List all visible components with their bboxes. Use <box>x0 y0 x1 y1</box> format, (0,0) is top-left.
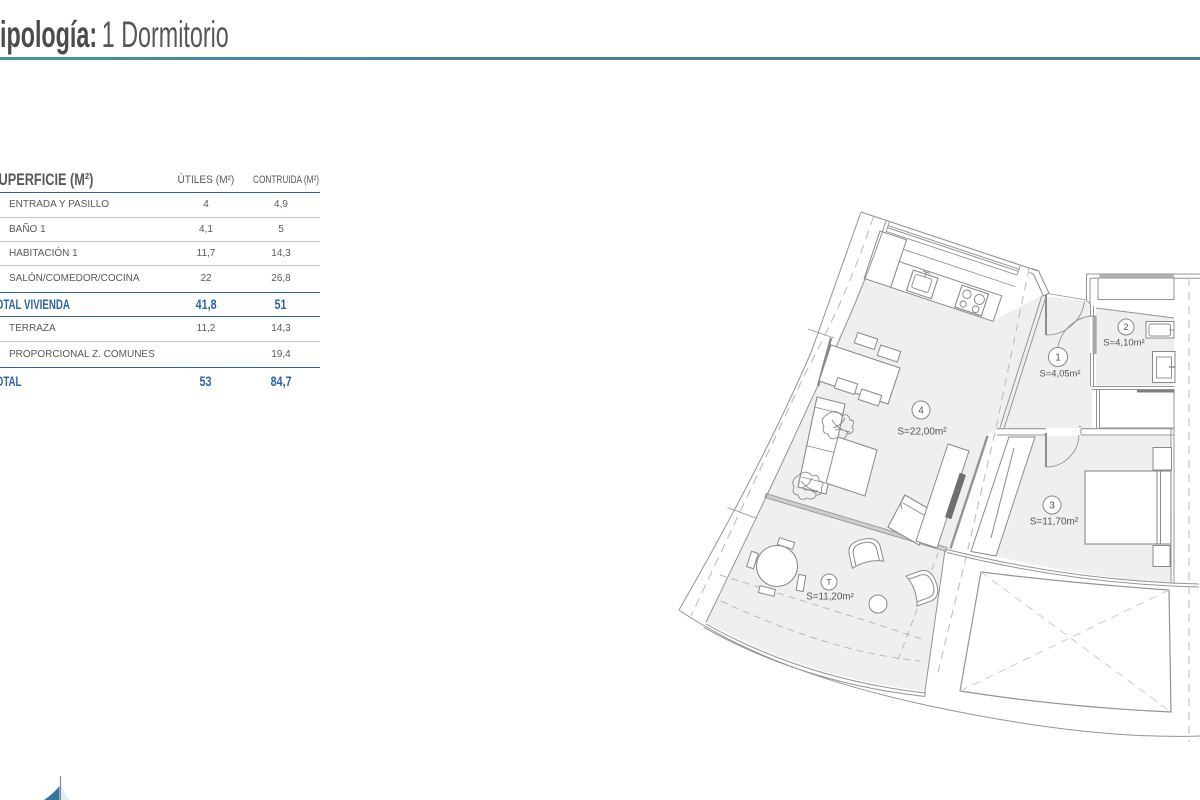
svg-text:2: 2 <box>1123 322 1128 332</box>
svg-text:4: 4 <box>918 406 924 417</box>
svg-text:S=4,05m²: S=4,05m² <box>1040 368 1081 379</box>
svg-text:S=22,00m²: S=22,00m² <box>897 427 947 438</box>
svg-text:3: 3 <box>1049 501 1055 512</box>
svg-text:S=4,10m²: S=4,10m² <box>1103 338 1144 349</box>
svg-text:S=11,70m²: S=11,70m² <box>1030 517 1079 528</box>
svg-text:S=11,20m²: S=11,20m² <box>806 592 854 603</box>
svg-text:1: 1 <box>1055 353 1061 364</box>
svg-text:T: T <box>826 577 831 587</box>
